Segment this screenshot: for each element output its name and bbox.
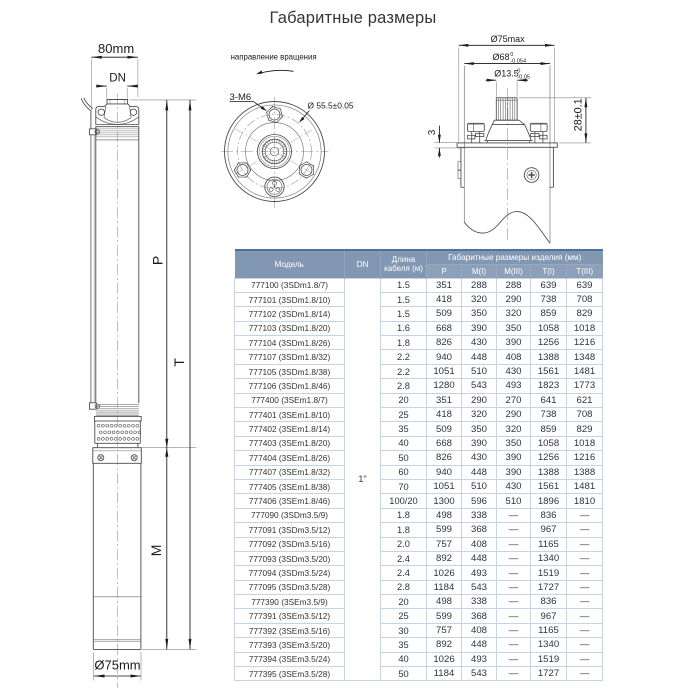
svg-text:Ø 55.5±0.05: Ø 55.5±0.05	[308, 100, 354, 110]
svg-text:80mm: 80mm	[98, 41, 134, 56]
svg-text:Ø75mm: Ø75mm	[94, 658, 140, 673]
svg-text:P: P	[149, 256, 165, 265]
svg-text:0: 0	[517, 68, 520, 74]
svg-text:DN: DN	[109, 72, 126, 84]
svg-text:T: T	[171, 358, 187, 367]
svg-text:3: 3	[427, 129, 438, 135]
svg-text:3-М6: 3-М6	[230, 92, 252, 103]
svg-text:0: 0	[510, 52, 513, 58]
svg-text:Ø75max: Ø75max	[491, 34, 526, 44]
svg-text:M: M	[148, 545, 164, 557]
svg-text:направление вращения: направление вращения	[231, 52, 317, 61]
svg-text:28±0.1: 28±0.1	[573, 98, 585, 131]
svg-text:Ø13.5: Ø13.5	[494, 68, 519, 78]
svg-text:Ø68: Ø68	[493, 52, 510, 62]
